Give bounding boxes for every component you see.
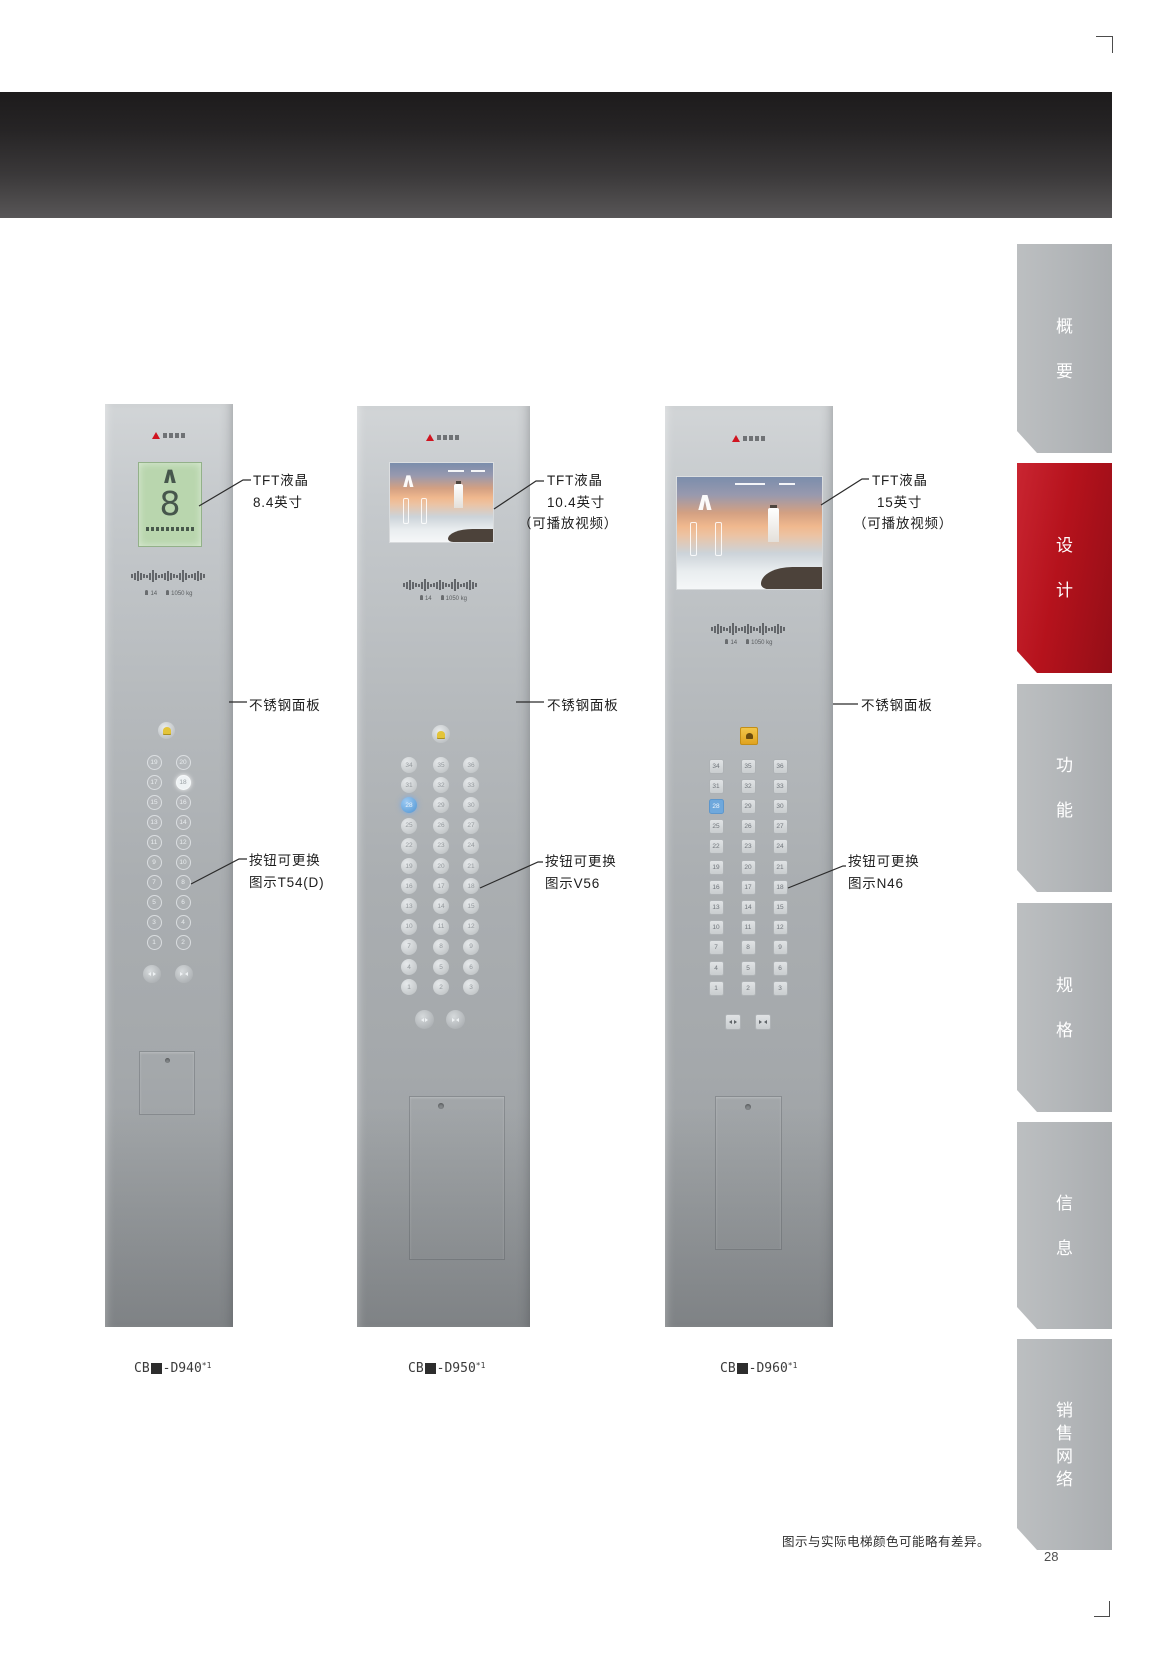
floor-button-16: 16 <box>709 880 724 895</box>
osd-text <box>471 470 485 472</box>
service-hatch <box>715 1096 782 1250</box>
floor-button-33: 33 <box>773 779 788 794</box>
floor-button-8: 8 <box>741 940 756 955</box>
sidebar-tab-6[interactable]: 销售网络 <box>1017 1339 1112 1550</box>
annotation-display-d950: TFT液晶 10.4英寸 （可播放视频） <box>547 470 618 535</box>
annotation-buttons-d960: 按钮可更换 图示N46 <box>848 851 920 894</box>
floor-button-35: 35 <box>741 759 756 774</box>
crop-mark-bottom-right-v <box>1109 1601 1110 1617</box>
floor-button-19: 19 <box>709 860 724 875</box>
tab-label-char: 要 <box>1056 349 1073 394</box>
door-open-button <box>143 965 161 983</box>
floor-button-29: 29 <box>741 799 756 814</box>
lighthouse-graphic <box>768 508 779 542</box>
floor-button-3: 3 <box>773 981 788 996</box>
floor-button-9: 9 <box>463 939 479 955</box>
floor-button-25: 25 <box>709 819 724 834</box>
elevator-panel-d940: ∧ 8 14 1050 kg 1920171815161314111291078… <box>105 404 233 1327</box>
load-icon <box>441 595 444 600</box>
floor-button-16: 16 <box>176 795 191 810</box>
up-arrow-icon: ∧ <box>694 486 715 517</box>
person-icon <box>420 595 423 600</box>
indicator-bar <box>690 522 697 556</box>
floor-button-19: 19 <box>401 858 417 874</box>
door-close-button <box>175 965 193 983</box>
tab-label-char: 络 <box>1056 1468 1073 1491</box>
indicator-bar <box>421 498 427 524</box>
model-placeholder-square <box>737 1363 748 1374</box>
floor-button-24: 24 <box>463 838 479 854</box>
tab-label-char: 功 <box>1056 743 1073 788</box>
load-icon <box>166 590 169 595</box>
brand-mark-icon <box>732 435 740 442</box>
capacity-plate: 14 1050 kg <box>357 595 530 602</box>
floor-button-12: 12 <box>773 920 788 935</box>
capacity-plate: 14 1050 kg <box>105 590 233 597</box>
floor-button-17: 17 <box>147 775 162 790</box>
door-open-icon <box>421 1018 424 1022</box>
floor-button-8: 8 <box>176 875 191 890</box>
floor-button-17: 17 <box>433 878 449 894</box>
floor-button-24: 24 <box>773 839 788 854</box>
floor-button-20: 20 <box>176 755 191 770</box>
floor-button-3: 3 <box>463 979 479 995</box>
floor-button-7: 7 <box>709 940 724 955</box>
model-placeholder-square <box>151 1363 162 1374</box>
floor-button-33: 33 <box>463 777 479 793</box>
floor-button-6: 6 <box>463 959 479 975</box>
floor-button-26: 26 <box>433 818 449 834</box>
door-close-icon <box>759 1020 762 1024</box>
floor-button-31: 31 <box>401 777 417 793</box>
elevator-panel-d960: ∧ 14 1050 kg 343536313233282930252627222… <box>665 406 833 1327</box>
floor-button-6: 6 <box>773 961 788 976</box>
floor-button-30: 30 <box>463 797 479 813</box>
door-open-icon <box>729 1020 732 1024</box>
floor-button-15: 15 <box>147 795 162 810</box>
speaker-grille <box>711 621 785 637</box>
mitsubishi-logo <box>357 434 530 441</box>
crop-mark-top-right-h <box>1096 36 1113 37</box>
floor-button-22: 22 <box>709 839 724 854</box>
bell-icon <box>163 727 171 734</box>
person-icon <box>145 590 148 595</box>
floor-button-28: 28 <box>709 799 724 814</box>
header-band <box>0 92 1112 218</box>
floor-button-13: 13 <box>709 900 724 915</box>
floor-button-34: 34 <box>709 759 724 774</box>
floor-button-26: 26 <box>741 819 756 834</box>
model-placeholder-square <box>425 1363 436 1374</box>
floor-button-6: 6 <box>176 895 191 910</box>
floor-button-17: 17 <box>741 880 756 895</box>
floor-button-13: 13 <box>147 815 162 830</box>
alarm-button <box>740 727 758 745</box>
model-caption-d960: CB-D960*1 <box>720 1361 797 1376</box>
tab-label-char: 格 <box>1056 1008 1073 1053</box>
lcd-ticker <box>146 527 194 531</box>
rocks-graphic <box>761 567 822 589</box>
floor-button-21: 21 <box>773 860 788 875</box>
tab-label-char: 网 <box>1056 1445 1073 1468</box>
person-icon <box>725 639 728 644</box>
mitsubishi-logo <box>665 435 833 442</box>
floor-button-2: 2 <box>433 979 449 995</box>
sidebar-tab-2[interactable]: 设计 <box>1017 463 1112 673</box>
floor-button-2: 2 <box>176 935 191 950</box>
floor-button-36: 36 <box>773 759 788 774</box>
floor-button-10: 10 <box>709 920 724 935</box>
floor-button-28: 28 <box>401 797 417 813</box>
sidebar-tab-5[interactable]: 信息 <box>1017 1122 1112 1329</box>
indicator-bar <box>403 498 409 524</box>
door-close-icon <box>180 972 183 976</box>
floor-button-14: 14 <box>741 900 756 915</box>
tab-label-char: 销 <box>1056 1399 1073 1422</box>
floor-button-22: 22 <box>401 838 417 854</box>
floor-button-18: 18 <box>176 775 191 790</box>
model-caption-d940: CB-D940*1 <box>134 1361 211 1376</box>
speaker-grille <box>131 568 205 584</box>
indicator-bar <box>715 522 722 556</box>
floor-button-15: 15 <box>773 900 788 915</box>
floor-button-35: 35 <box>433 757 449 773</box>
capacity-plate: 14 1050 kg <box>665 639 833 646</box>
floor-button-36: 36 <box>463 757 479 773</box>
catalog-page: 概要设计功能规格信息销售网络 ∧ 8 14 1050 kg 1920171815… <box>0 0 1169 1653</box>
floor-button-2: 2 <box>741 981 756 996</box>
floor-button-10: 10 <box>176 855 191 870</box>
rocks-graphic <box>448 529 493 542</box>
annotation-panel-d940: 不锈钢面板 <box>249 695 321 717</box>
annotation-buttons-d940: 按钮可更换 图示T54(D) <box>249 850 324 893</box>
crop-mark-top-right-v <box>1112 36 1113 53</box>
brand-mark-icon <box>426 434 434 441</box>
osd-text <box>448 470 464 472</box>
mitsubishi-logo <box>105 432 233 439</box>
floor-button-3: 3 <box>147 915 162 930</box>
floor-button-29: 29 <box>433 797 449 813</box>
floor-button-19: 19 <box>147 755 162 770</box>
floor-button-5: 5 <box>147 895 162 910</box>
osd-text <box>735 483 765 485</box>
keyhole <box>438 1103 444 1109</box>
annotation-display-d940: TFT液晶 8.4英寸 <box>253 470 309 513</box>
bell-icon <box>746 733 753 739</box>
tab-label-char: 息 <box>1056 1226 1073 1271</box>
door-close-button <box>446 1010 465 1029</box>
floor-button-21: 21 <box>463 858 479 874</box>
door-close-button <box>755 1014 771 1030</box>
brand-text <box>163 433 187 438</box>
bell-icon <box>437 731 445 738</box>
floor-button-5: 5 <box>741 961 756 976</box>
floor-button-10: 10 <box>401 919 417 935</box>
color-disclaimer-note: 图示与实际电梯颜色可能略有差异。 <box>782 1531 990 1550</box>
floor-button-9: 9 <box>773 940 788 955</box>
floor-button-4: 4 <box>709 961 724 976</box>
tft-display-green: ∧ 8 <box>138 462 202 547</box>
brand-text <box>743 436 767 441</box>
alarm-button <box>432 725 450 743</box>
floor-button-12: 12 <box>176 835 191 850</box>
floor-button-18: 18 <box>463 878 479 894</box>
door-open-icon <box>148 972 151 976</box>
floor-button-14: 14 <box>433 898 449 914</box>
floor-button-7: 7 <box>401 939 417 955</box>
tab-label-char: 信 <box>1056 1181 1073 1226</box>
brand-mark-icon <box>152 432 160 439</box>
floor-button-13: 13 <box>401 898 417 914</box>
load-icon <box>746 639 749 644</box>
door-open-button <box>415 1010 434 1029</box>
tft-display-photo: ∧ <box>390 463 493 542</box>
floor-button-25: 25 <box>401 818 417 834</box>
sidebar-tab-1[interactable]: 概要 <box>1017 244 1112 453</box>
sidebar-tab-3[interactable]: 功能 <box>1017 684 1112 892</box>
sidebar-tab-4[interactable]: 规格 <box>1017 903 1112 1112</box>
keyhole <box>745 1104 751 1110</box>
floor-button-1: 1 <box>709 981 724 996</box>
brand-text <box>437 435 461 440</box>
tab-label-char: 规 <box>1056 963 1073 1008</box>
floor-button-9: 9 <box>147 855 162 870</box>
floor-button-20: 20 <box>741 860 756 875</box>
floor-button-4: 4 <box>176 915 191 930</box>
floor-button-34: 34 <box>401 757 417 773</box>
floor-button-27: 27 <box>773 819 788 834</box>
floor-button-20: 20 <box>433 858 449 874</box>
floor-button-16: 16 <box>401 878 417 894</box>
speaker-grille <box>403 577 477 593</box>
model-caption-d950: CB-D950*1 <box>408 1361 485 1376</box>
annotation-buttons-d950: 按钮可更换 图示V56 <box>545 851 617 894</box>
floor-button-11: 11 <box>147 835 162 850</box>
floor-button-1: 1 <box>401 979 417 995</box>
page-number: 28 <box>1044 1549 1058 1564</box>
annotation-panel-d960: 不锈钢面板 <box>861 695 933 717</box>
osd-text <box>779 483 795 485</box>
floor-button-32: 32 <box>433 777 449 793</box>
crop-mark-bottom-right-h <box>1094 1616 1110 1617</box>
floor-button-11: 11 <box>433 919 449 935</box>
floor-button-32: 32 <box>741 779 756 794</box>
floor-button-5: 5 <box>433 959 449 975</box>
annotation-panel-d950: 不锈钢面板 <box>547 695 619 717</box>
service-hatch <box>409 1096 505 1260</box>
floor-button-18: 18 <box>773 880 788 895</box>
tft-display-photo: ∧ <box>677 477 822 589</box>
floor-button-23: 23 <box>433 838 449 854</box>
floor-button-15: 15 <box>463 898 479 914</box>
floor-button-8: 8 <box>433 939 449 955</box>
floor-button-12: 12 <box>463 919 479 935</box>
floor-button-30: 30 <box>773 799 788 814</box>
floor-button-11: 11 <box>741 920 756 935</box>
annotation-display-d960: TFT液晶 15英寸 （可播放视频） <box>872 470 953 535</box>
tab-label-char: 设 <box>1056 523 1073 568</box>
floor-indicator: 8 <box>139 487 201 521</box>
door-open-button <box>725 1014 741 1030</box>
floor-button-14: 14 <box>176 815 191 830</box>
floor-button-7: 7 <box>147 875 162 890</box>
floor-button-31: 31 <box>709 779 724 794</box>
alarm-button <box>158 722 175 739</box>
lighthouse-graphic <box>454 484 463 508</box>
keyhole <box>165 1058 170 1063</box>
tab-label-char: 能 <box>1056 788 1073 833</box>
floor-button-4: 4 <box>401 959 417 975</box>
tab-label-char: 概 <box>1056 304 1073 349</box>
tab-label-char: 售 <box>1056 1422 1073 1445</box>
floor-button-27: 27 <box>463 818 479 834</box>
floor-button-23: 23 <box>741 839 756 854</box>
tab-label-char: 计 <box>1056 568 1073 613</box>
door-close-icon <box>452 1018 455 1022</box>
elevator-panel-d950: ∧ 14 1050 kg 343536313233282930252627222… <box>357 406 530 1327</box>
up-arrow-icon: ∧ <box>400 468 416 493</box>
floor-button-1: 1 <box>147 935 162 950</box>
